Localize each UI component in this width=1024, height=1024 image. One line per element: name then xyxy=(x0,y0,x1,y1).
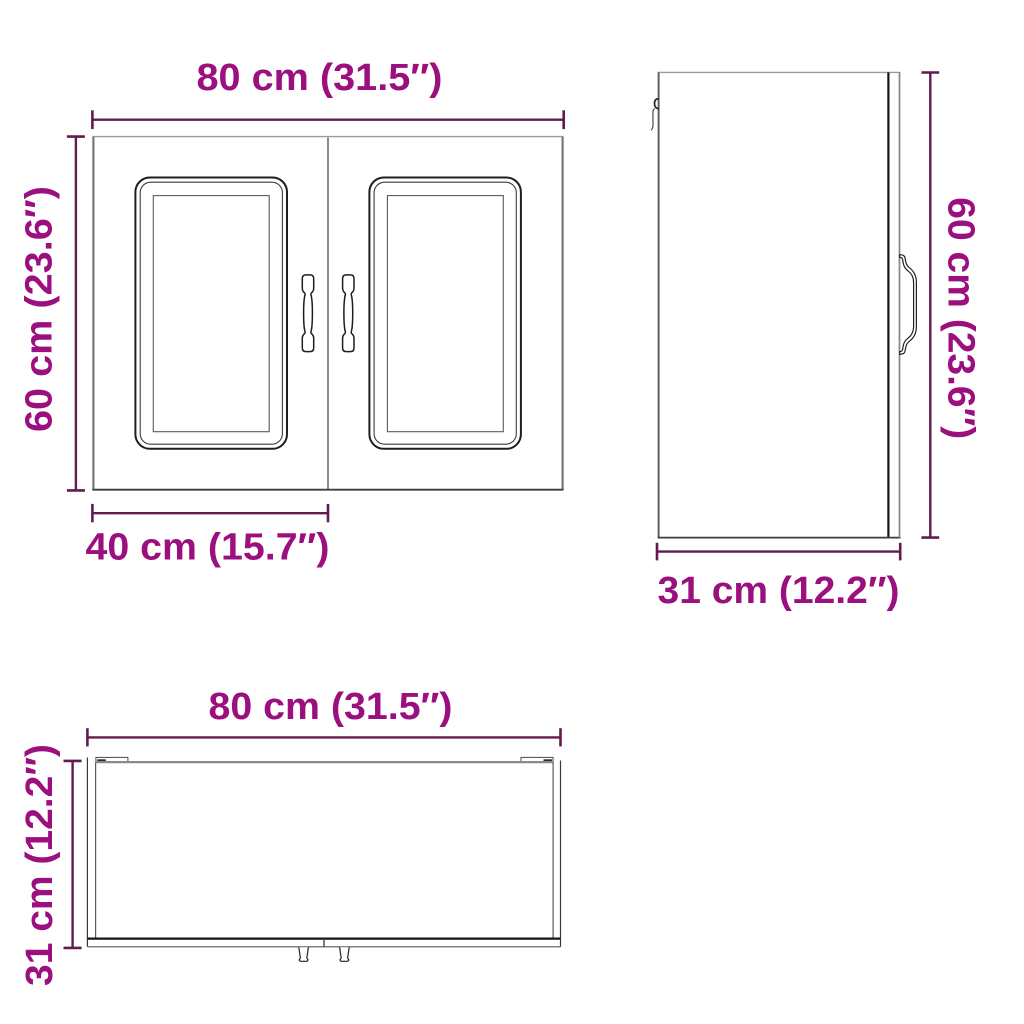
svg-text:80 cm (31.5″): 80 cm (31.5″) xyxy=(209,686,453,728)
svg-text:60 cm (23.6″): 60 cm (23.6″) xyxy=(940,197,982,439)
svg-text:31 cm (12.2″): 31 cm (12.2″) xyxy=(658,570,900,612)
svg-text:40 cm (15.7″): 40 cm (15.7″) xyxy=(86,527,330,569)
svg-text:60 cm (23.6″): 60 cm (23.6″) xyxy=(19,186,61,432)
svg-text:31 cm (12.2″): 31 cm (12.2″) xyxy=(19,744,61,986)
svg-text:80 cm (31.5″): 80 cm (31.5″) xyxy=(197,57,443,99)
